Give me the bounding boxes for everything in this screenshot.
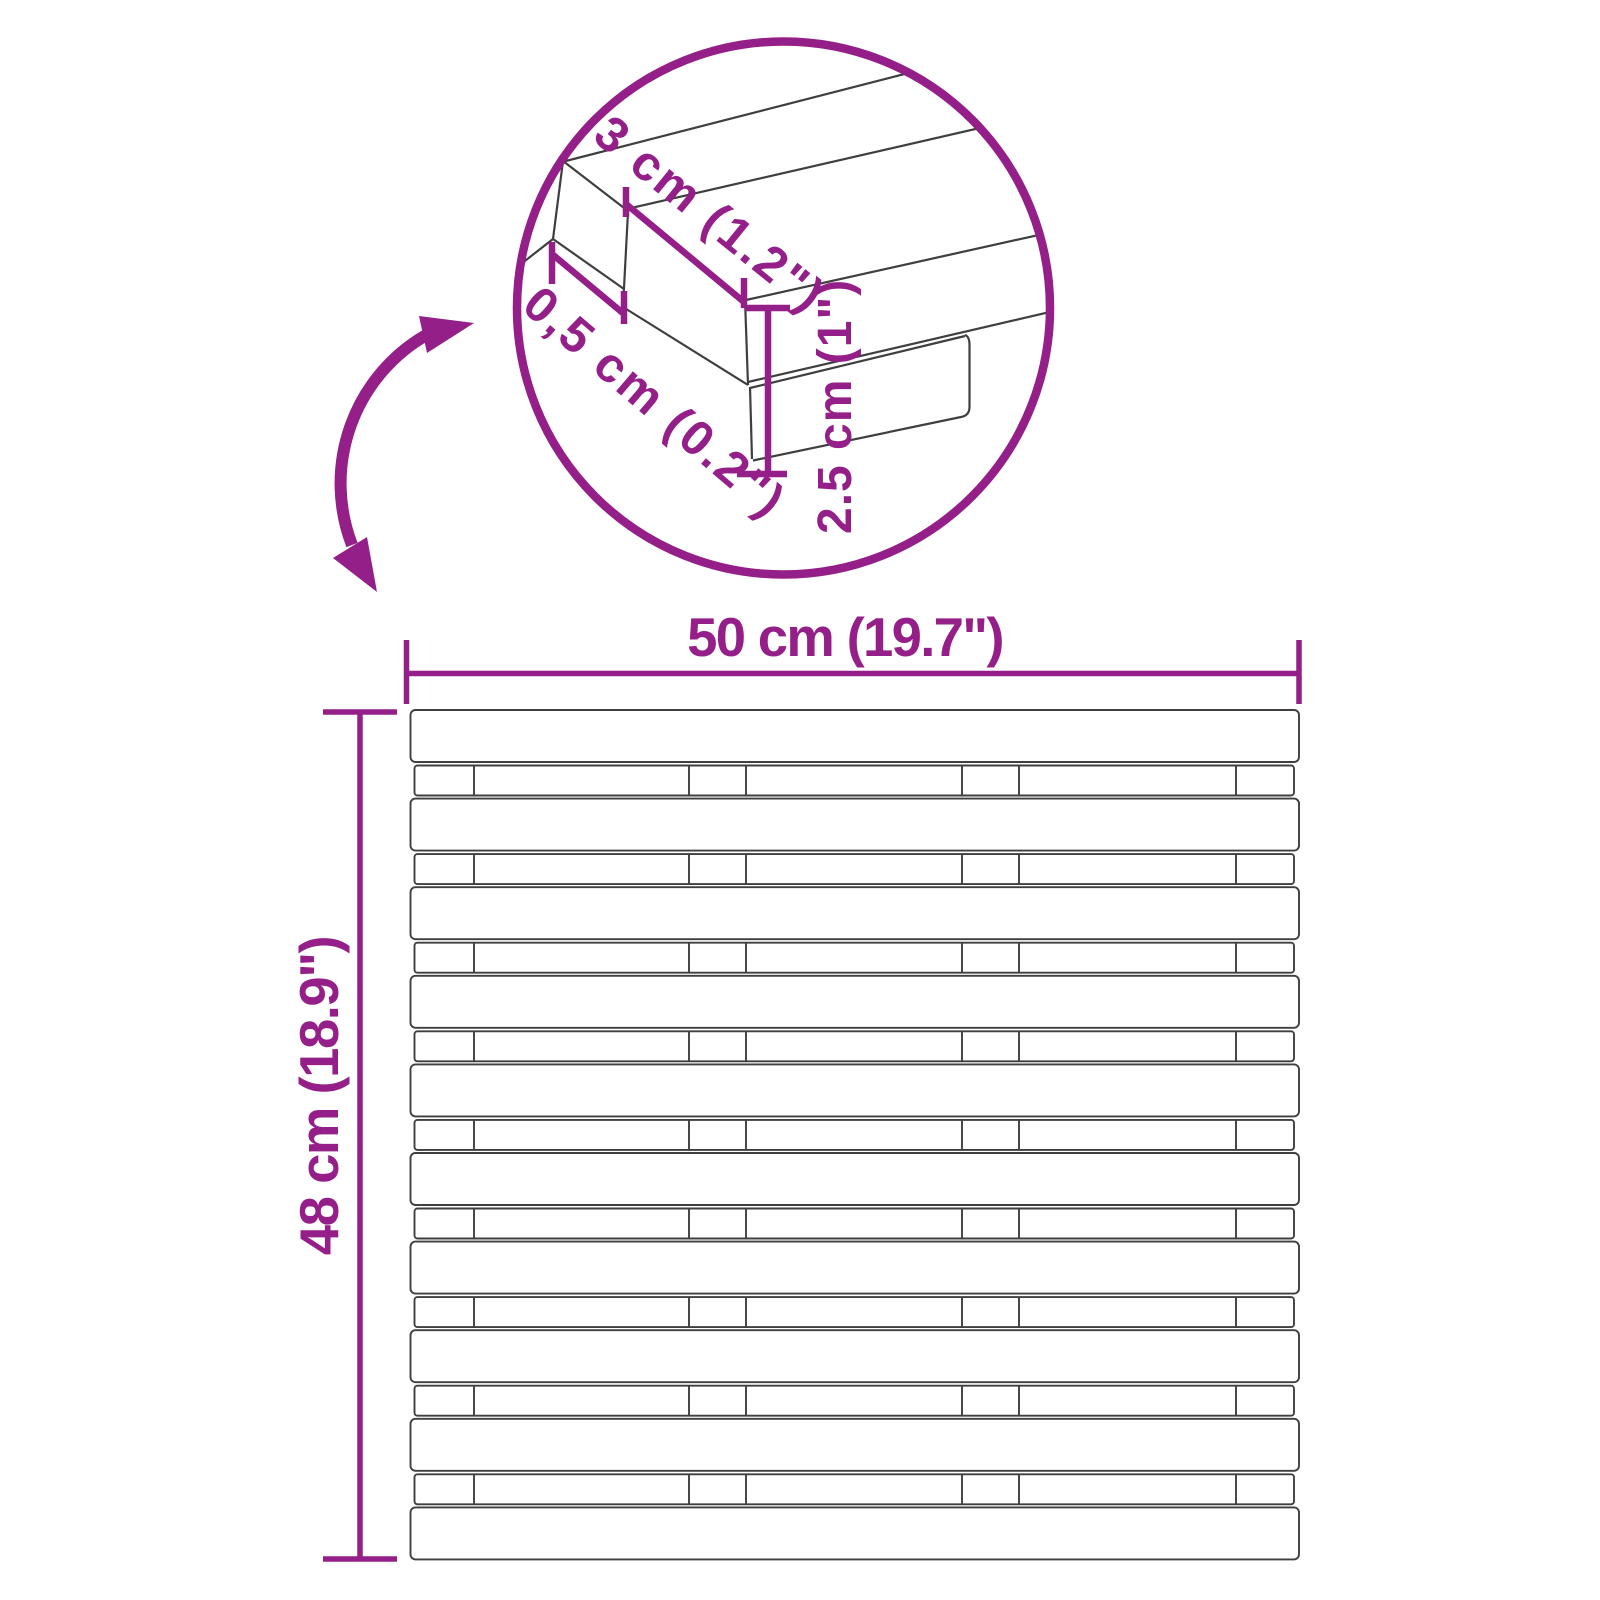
svg-text:48 cm (18.9"): 48 cm (18.9") — [289, 937, 350, 1255]
svg-text:50 cm (19.7"): 50 cm (19.7") — [687, 607, 1003, 668]
svg-text:2.5 cm (1"): 2.5 cm (1") — [809, 279, 862, 534]
